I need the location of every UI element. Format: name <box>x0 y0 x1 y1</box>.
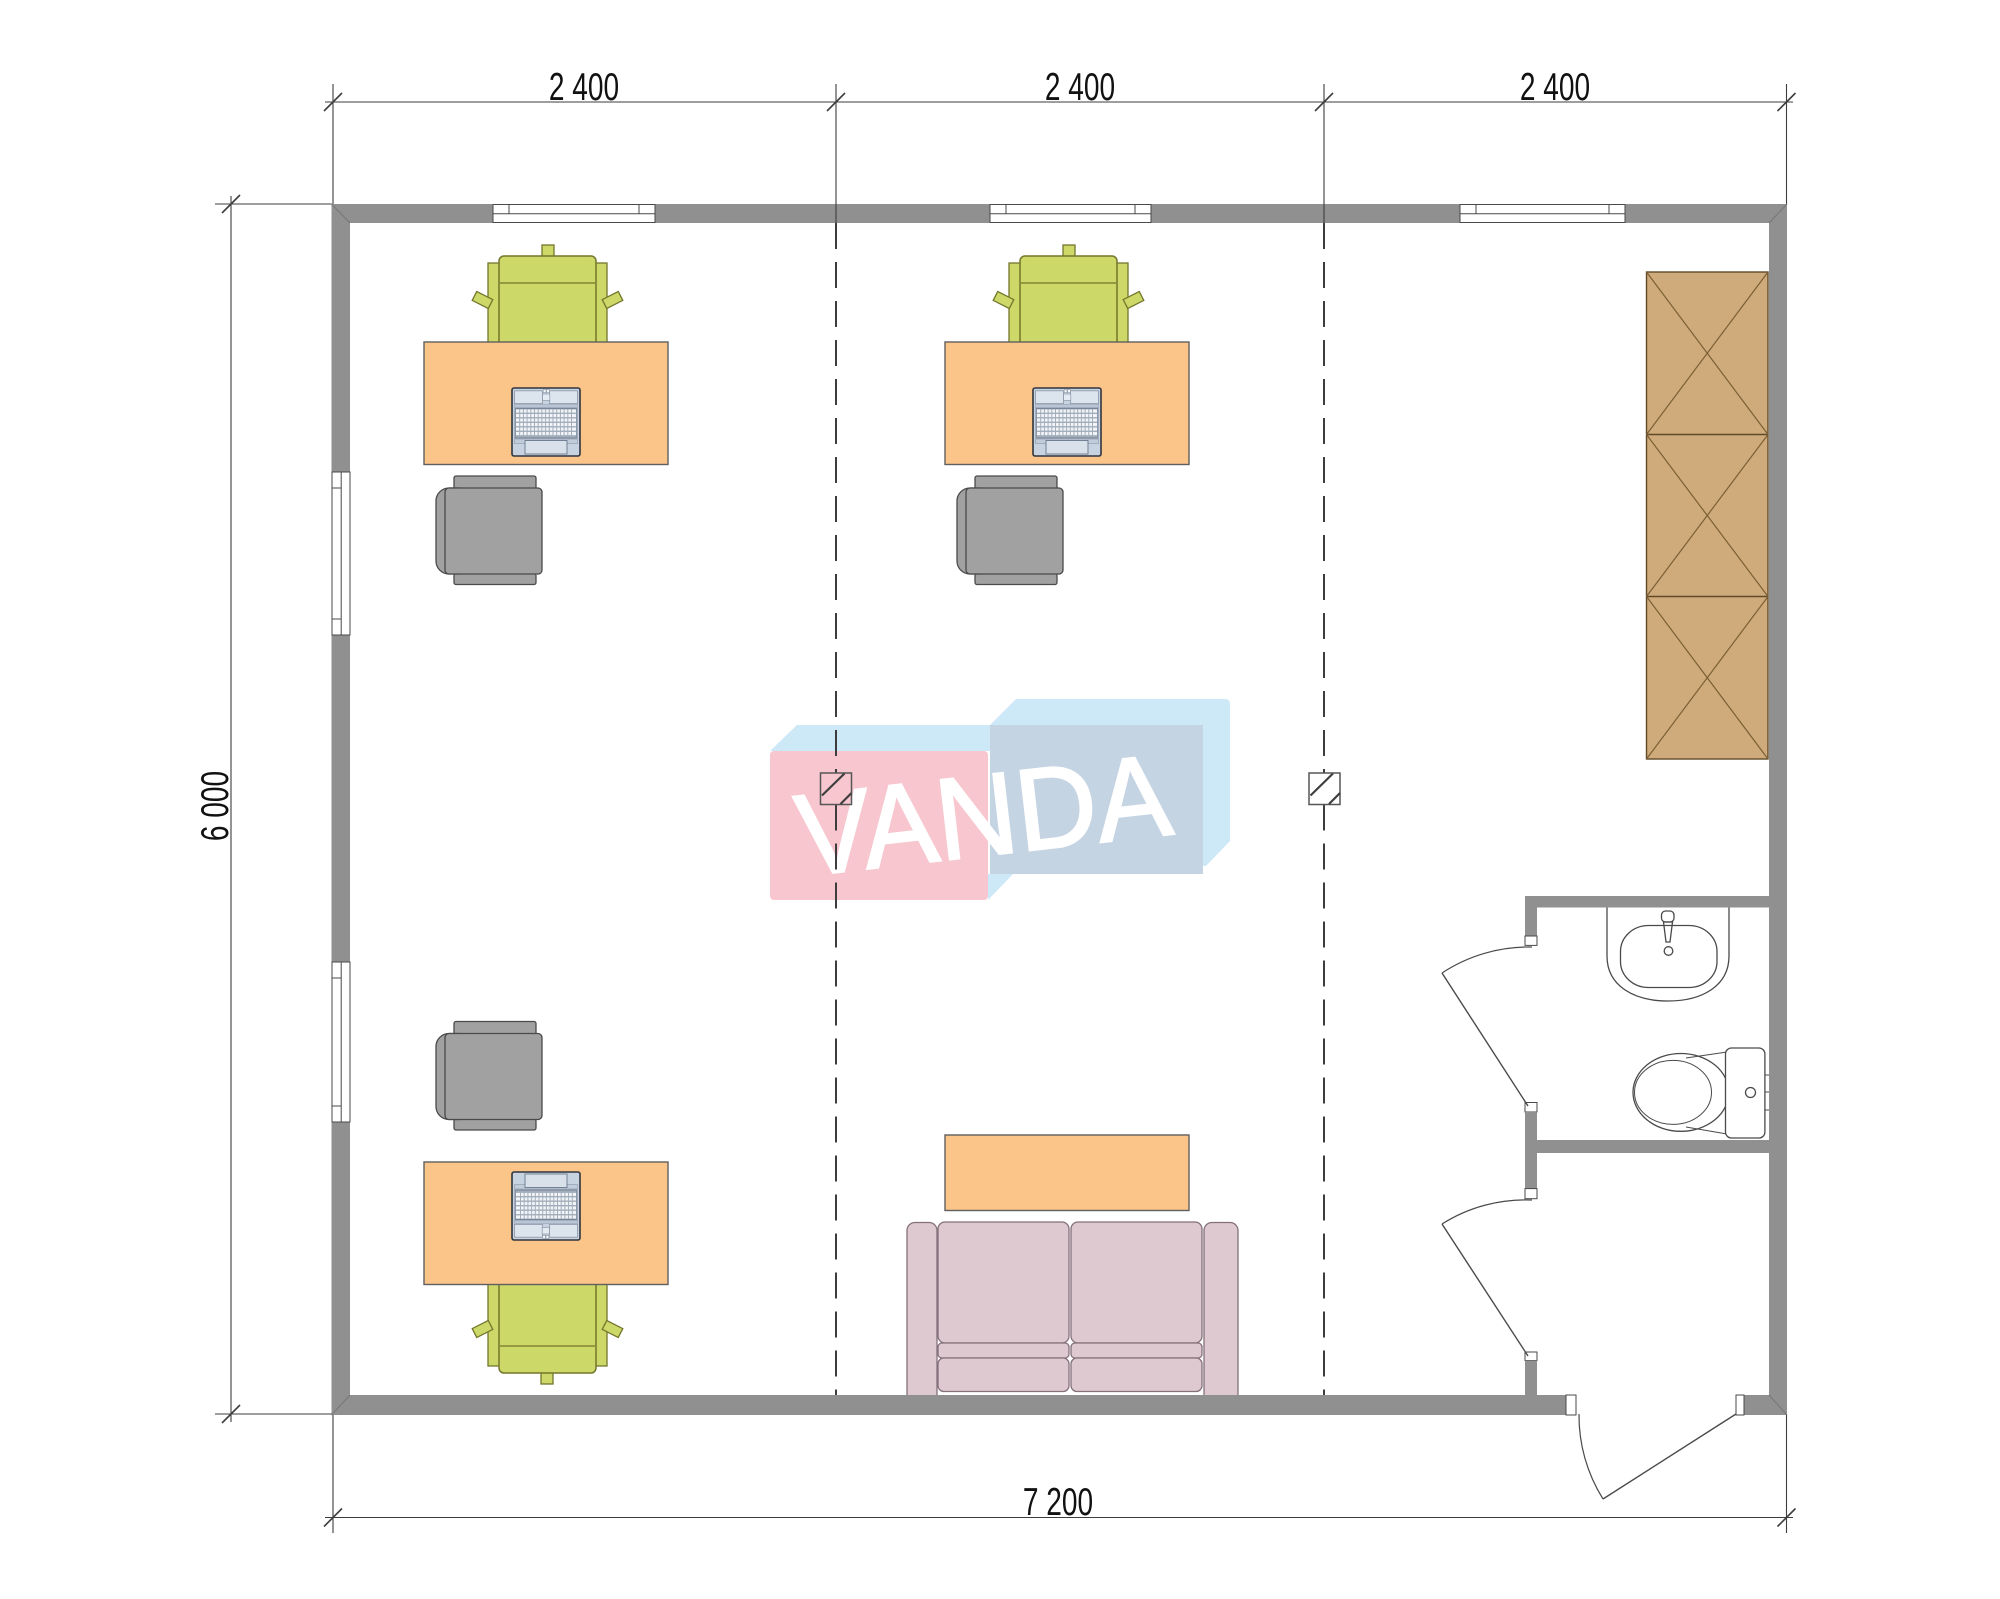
svg-text:2 400: 2 400 <box>1520 66 1590 110</box>
svg-text:7 200: 7 200 <box>1023 1481 1093 1525</box>
svg-text:6 000: 6 000 <box>194 771 238 841</box>
svg-text:2 400: 2 400 <box>549 66 619 110</box>
svg-text:2 400: 2 400 <box>1045 66 1115 110</box>
